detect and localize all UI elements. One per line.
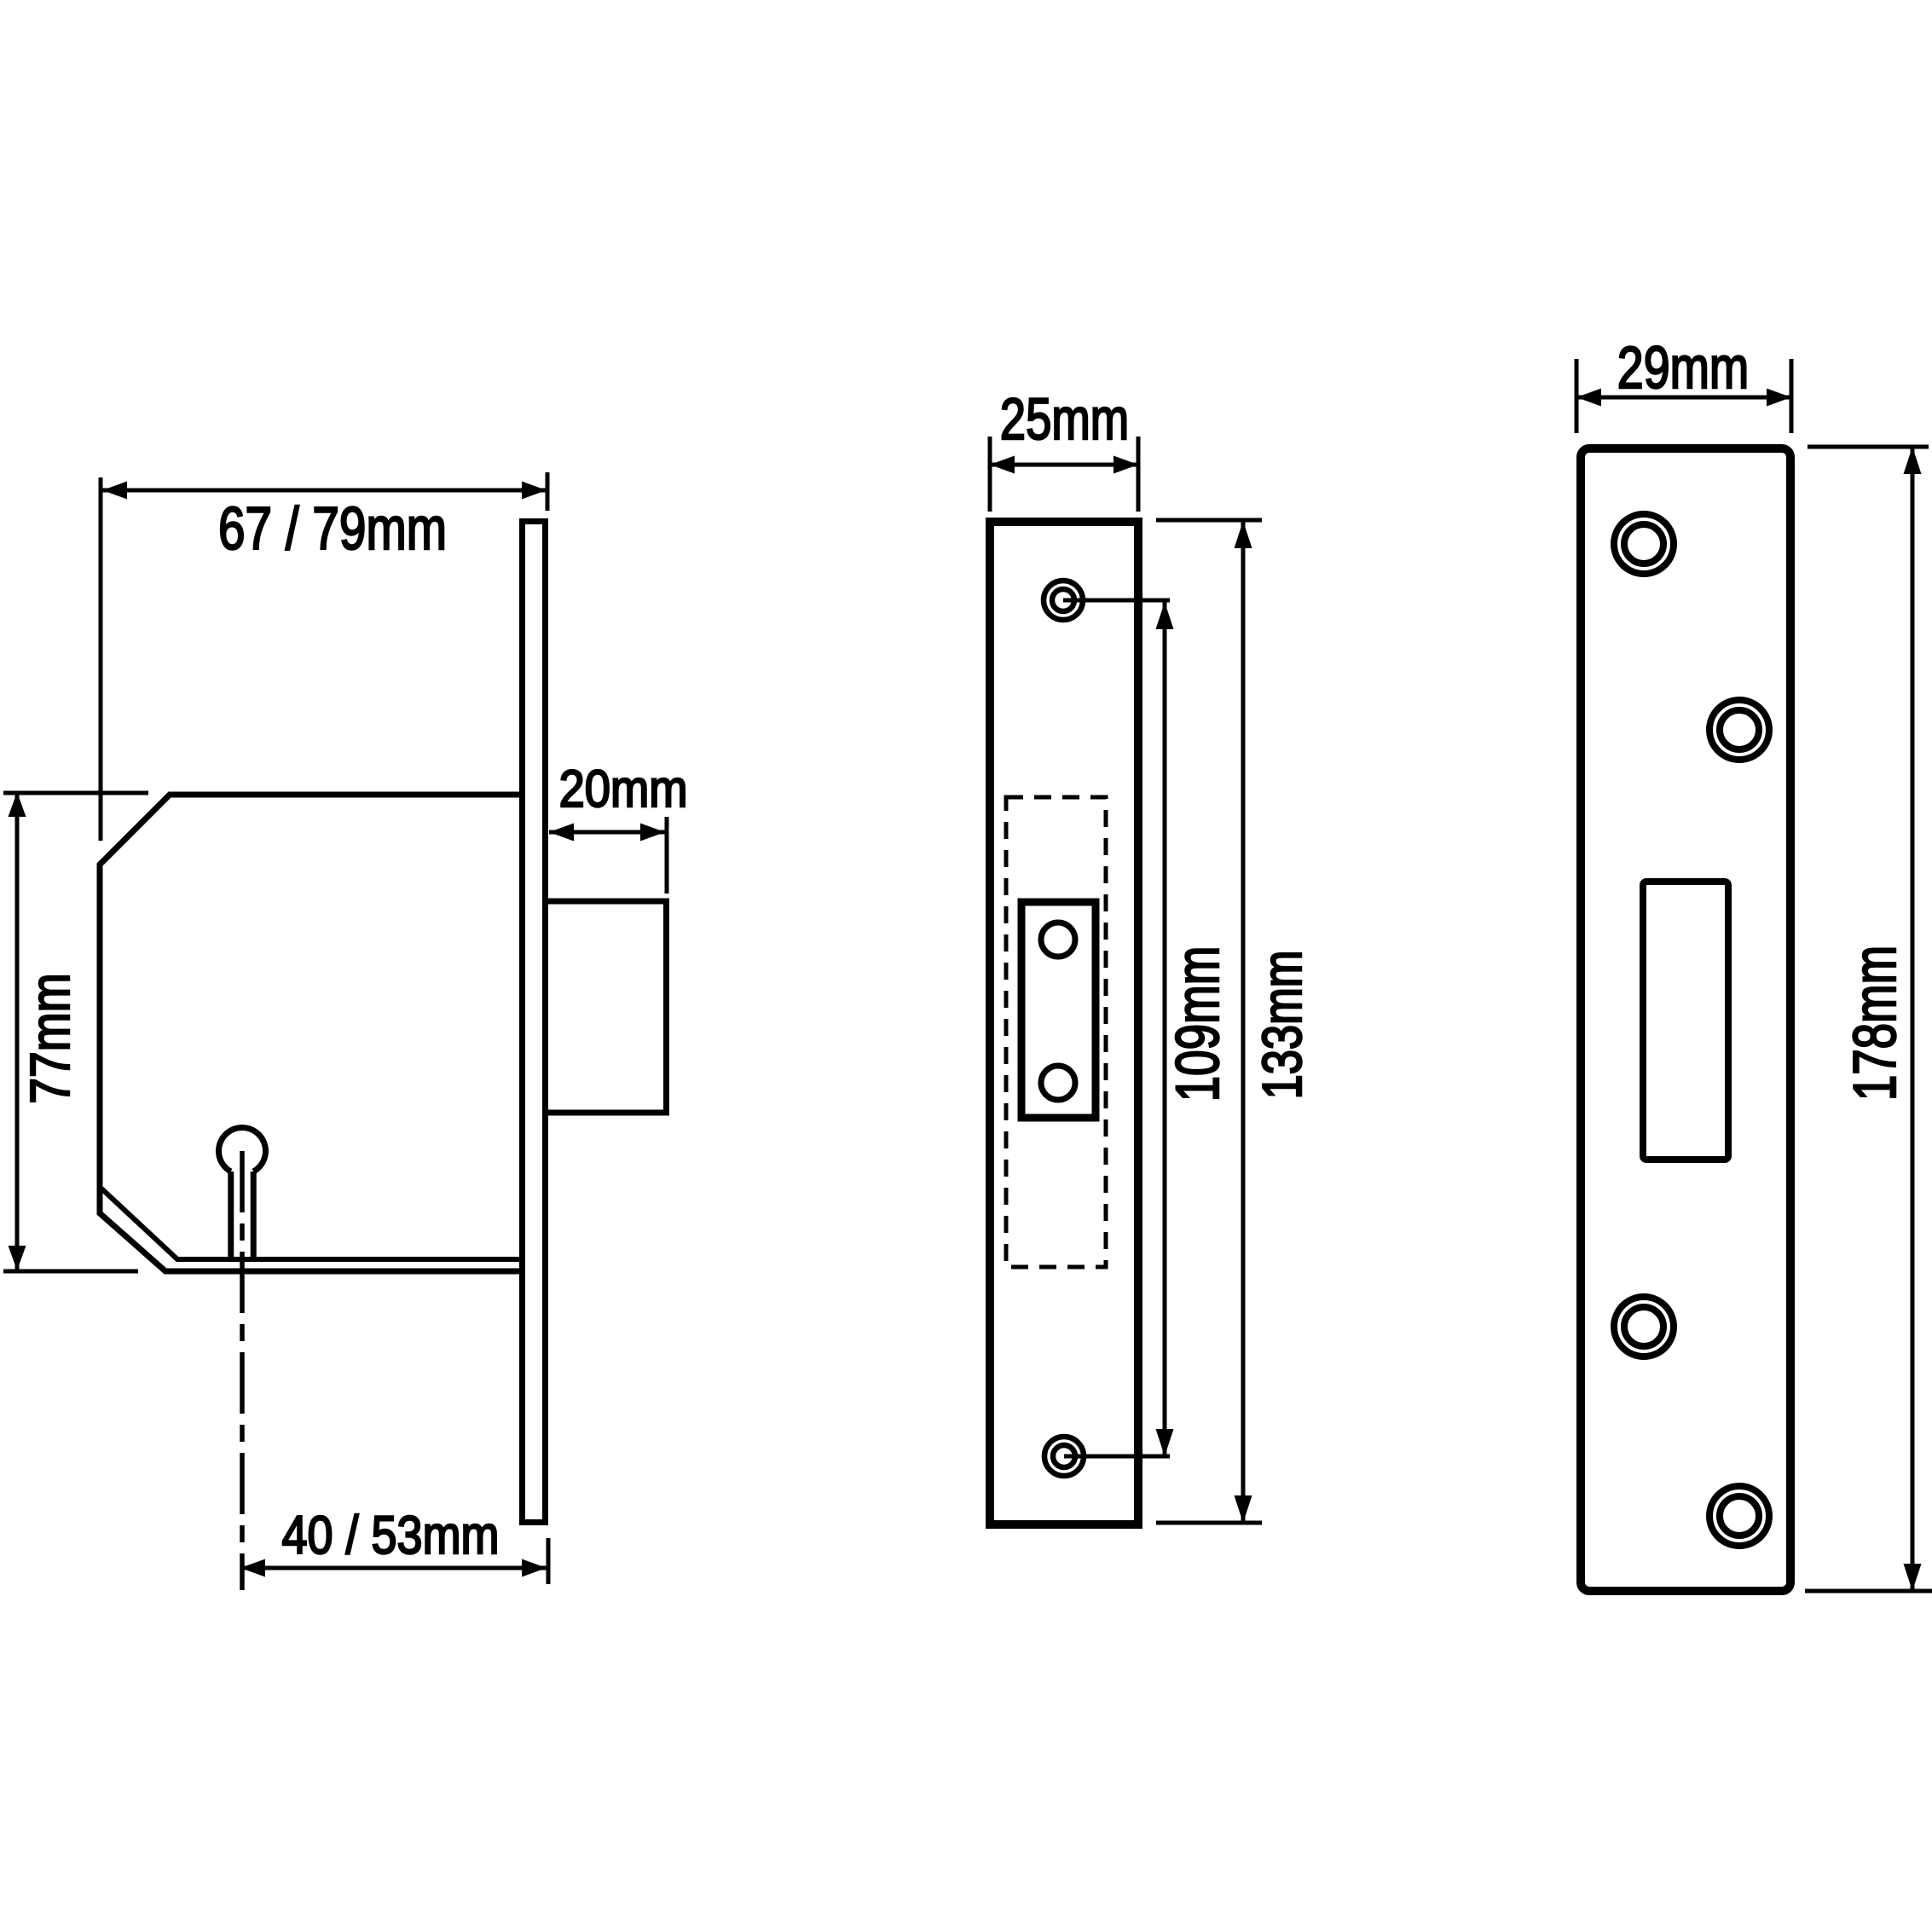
svg-text:29mm: 29mm [1617,335,1749,401]
svg-text:133mm: 133mm [1252,951,1313,1100]
svg-text:40 / 53mm: 40 / 53mm [282,1506,500,1565]
svg-text:178mm: 178mm [1842,946,1908,1101]
svg-text:77mm: 77mm [19,973,81,1104]
svg-text:67 / 79mm: 67 / 79mm [218,495,447,562]
svg-text:25mm: 25mm [1000,387,1129,453]
svg-text:20mm: 20mm [559,761,688,818]
svg-text:109mm: 109mm [1164,946,1232,1102]
